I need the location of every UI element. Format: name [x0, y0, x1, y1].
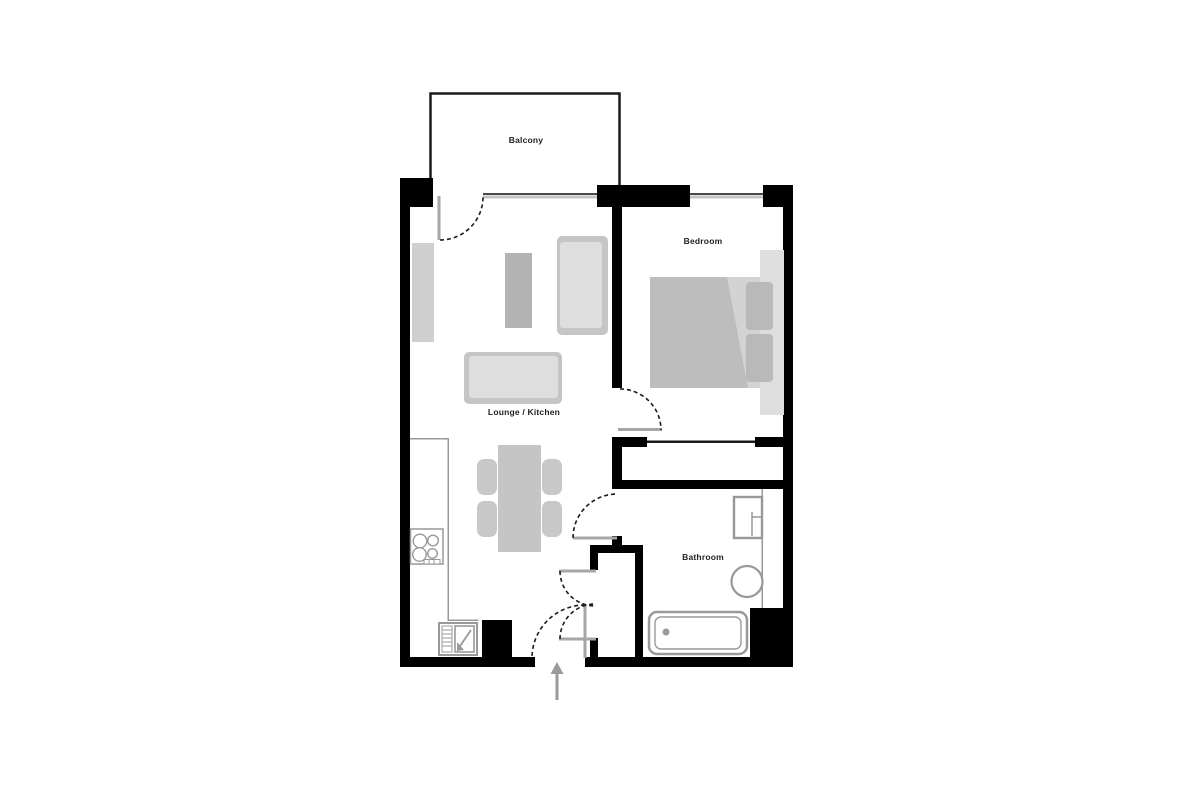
door-swing-arc — [620, 389, 661, 430]
door-swing-arc — [573, 494, 617, 538]
wall — [612, 198, 622, 388]
wall-column — [482, 620, 512, 657]
floor-plan: Balcony Bedroom Lounge / Kitchen Bathroo… — [0, 0, 1200, 800]
door-swing-arc — [560, 571, 595, 606]
washing-machine — [439, 623, 477, 655]
door-swing-arc — [440, 197, 483, 240]
wall — [585, 657, 793, 667]
bed — [650, 250, 784, 415]
wall — [635, 553, 643, 657]
door-leaf — [584, 605, 587, 658]
wall — [590, 553, 598, 570]
door-leaf — [573, 537, 617, 540]
wall — [612, 480, 783, 489]
dining-set — [477, 445, 562, 552]
dining-chair — [477, 501, 497, 537]
sliding-wardrobe-doors — [647, 441, 755, 444]
dining-chair — [542, 501, 562, 537]
coffee-table — [505, 253, 532, 328]
wall — [755, 437, 783, 447]
bathroom-door — [573, 494, 617, 540]
door-leaf — [559, 638, 596, 641]
door-leaf — [618, 428, 662, 431]
entrance-arrow-icon — [551, 662, 564, 700]
lounge-window — [483, 193, 597, 199]
wall — [597, 185, 690, 207]
room-label-bathroom: Bathroom — [682, 552, 724, 562]
door-leaf — [438, 196, 441, 240]
balcony-door — [438, 196, 484, 240]
bathtub — [649, 612, 747, 654]
sideboard — [412, 243, 434, 342]
dining-chair — [542, 459, 562, 495]
door-swing-arc — [560, 604, 595, 639]
room-label-balcony: Balcony — [509, 135, 544, 145]
wall — [590, 638, 598, 657]
bedroom-window — [690, 193, 763, 199]
dining-table — [498, 445, 541, 552]
pillow — [746, 282, 773, 330]
wall — [400, 657, 535, 667]
hob — [411, 529, 444, 564]
bedroom-door — [618, 389, 662, 431]
wall — [783, 185, 793, 667]
wall-duct — [750, 608, 793, 657]
bathtub-drain — [663, 629, 670, 636]
basin — [734, 497, 762, 538]
room-label-bedroom: Bedroom — [684, 236, 723, 246]
floor-plan-canvas: Balcony Bedroom Lounge / Kitchen Bathroo… — [0, 0, 1200, 800]
entrance-door — [532, 605, 587, 658]
dining-chair — [477, 459, 497, 495]
wall — [590, 545, 643, 553]
door-leaf — [559, 570, 596, 573]
pillow — [746, 334, 773, 382]
headboard — [760, 250, 784, 415]
door-swing-arc — [532, 605, 585, 658]
sofa-bottom — [464, 352, 562, 404]
toilet — [732, 566, 763, 597]
sofa-right — [557, 236, 608, 335]
wall — [400, 185, 410, 667]
room-label-lounge-kitchen: Lounge / Kitchen — [488, 407, 560, 417]
wall — [612, 447, 622, 481]
wall — [612, 437, 647, 447]
